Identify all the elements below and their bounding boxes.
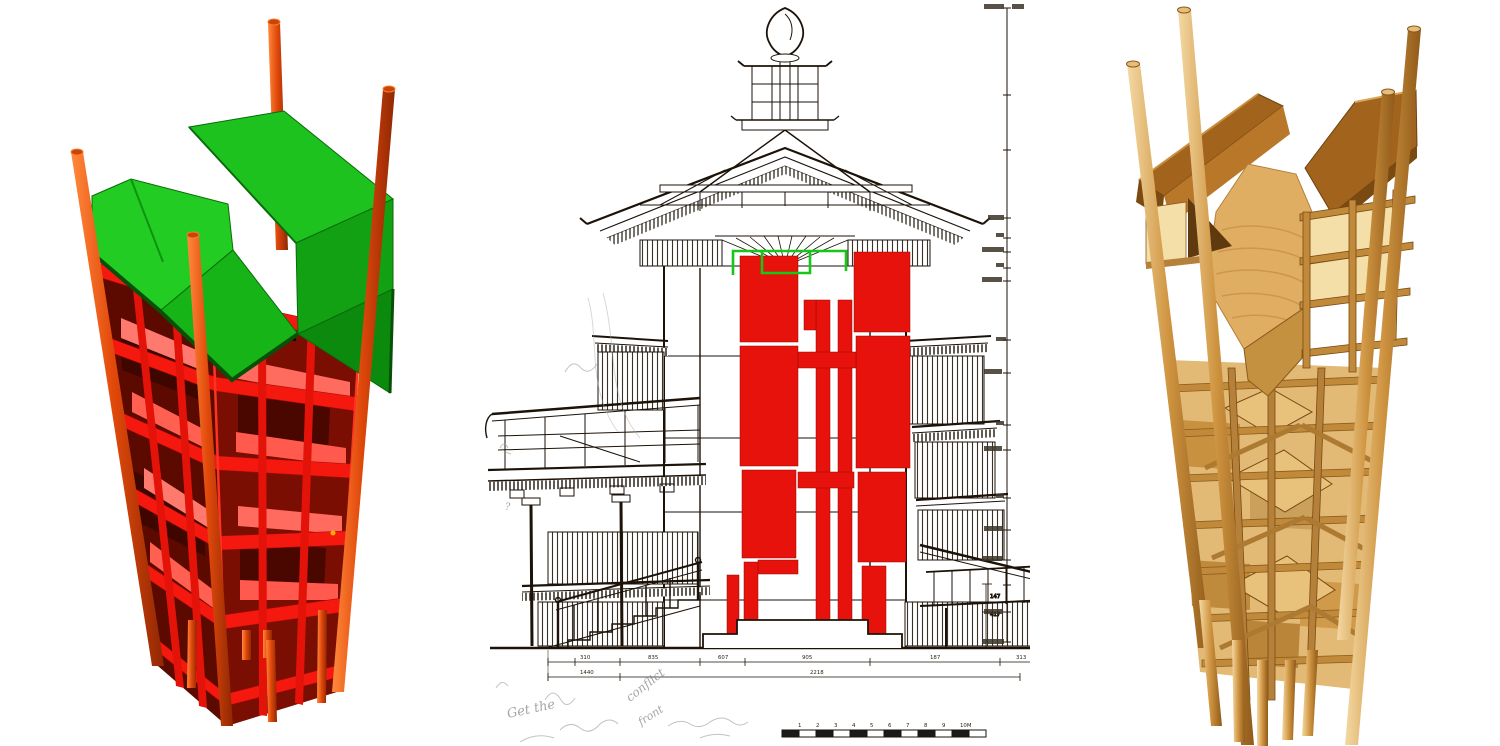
svg-text:6: 6 — [888, 723, 892, 729]
handwriting-mark: ? — [505, 502, 511, 513]
svg-text:2218: 2218 — [810, 670, 824, 676]
handwriting-note: conflict — [623, 665, 667, 704]
panel-left-model — [0, 0, 480, 746]
scale-bar — [782, 730, 986, 737]
svg-text:7: 7 — [906, 723, 909, 729]
svg-text:8: 8 — [924, 723, 928, 729]
red-core-highlight — [727, 252, 910, 646]
svg-text:905: 905 — [802, 655, 812, 661]
svg-text:9: 9 — [942, 723, 946, 729]
scalebar-labels: 1 2 3 4 5 6 7 8 9 10M — [798, 723, 972, 729]
figure: 147 417 — [0, 0, 1500, 746]
panel-wood-model — [1030, 0, 1500, 746]
svg-text:10M: 10M — [960, 723, 972, 729]
svg-text:310: 310 — [580, 655, 591, 661]
svg-text:1: 1 — [798, 723, 801, 729]
svg-text:187: 187 — [930, 655, 940, 661]
joint-marker — [331, 531, 336, 536]
svg-text:1440: 1440 — [580, 670, 594, 676]
handwriting-note: Get the — [506, 697, 557, 722]
svg-text:147: 147 — [990, 594, 1000, 600]
svg-text:835: 835 — [648, 655, 658, 661]
svg-text:5: 5 — [870, 723, 873, 729]
svg-text:2: 2 — [816, 723, 819, 729]
handwriting-note: front — [635, 702, 666, 729]
svg-text:4: 4 — [852, 723, 856, 729]
dimension-labels: 310 835 607 905 187 313 1440 2218 — [580, 655, 1026, 676]
svg-text:607: 607 — [718, 655, 728, 661]
svg-text:313: 313 — [1016, 655, 1026, 661]
panel-section-drawing: 147 417 — [480, 0, 1030, 746]
svg-text:3: 3 — [834, 723, 837, 729]
finial — [700, 8, 870, 192]
main-roof — [580, 148, 990, 245]
